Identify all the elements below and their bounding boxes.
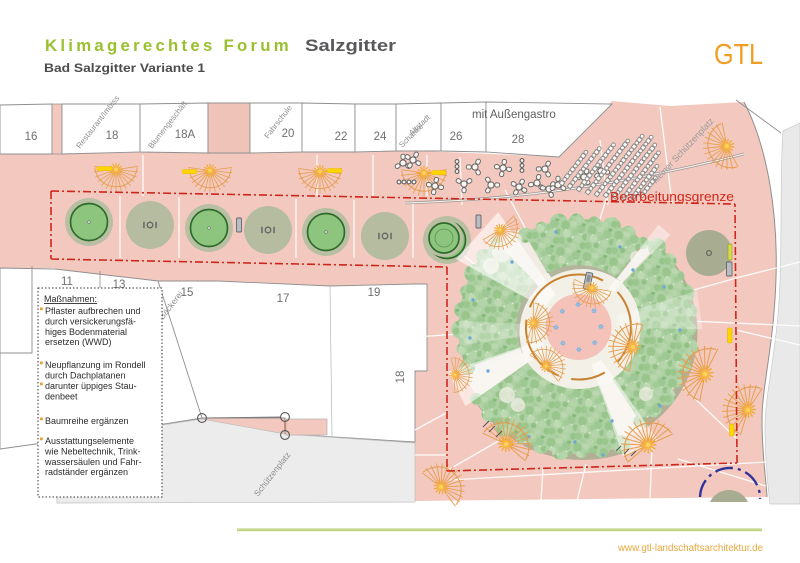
svg-text:28: 28 [512, 134, 525, 146]
svg-text:mit Außengastro: mit Außengastro [472, 109, 556, 121]
svg-text:denbeet: denbeet [45, 391, 78, 401]
svg-text:Pflaster aufbrechen und: Pflaster aufbrechen und [45, 306, 141, 316]
svg-text:www.gtl-landschaftsarchitektur: www.gtl-landschaftsarchitektur.de [617, 543, 763, 554]
svg-text:durch versickerungsfä-: durch versickerungsfä- [45, 316, 136, 326]
svg-text:durch Dachplatanen: durch Dachplatanen [45, 370, 126, 380]
svg-text:17: 17 [277, 293, 290, 305]
svg-text:Neupflanzung im Rondell: Neupflanzung im Rondell [45, 360, 146, 370]
svg-text:Ausstattungselemente: Ausstattungselemente [45, 436, 134, 446]
svg-text:Klimagerechtes Forum: Klimagerechtes Forum [45, 37, 292, 55]
svg-text:higes Bodenmaterial: higes Bodenmaterial [45, 327, 127, 337]
svg-text:20: 20 [282, 128, 295, 140]
svg-text:18A: 18A [175, 129, 196, 141]
svg-text:Bearbeitungsgrenze: Bearbeitungsgrenze [610, 189, 734, 204]
svg-text:Bad Salzgitter Variante 1: Bad Salzgitter Variante 1 [44, 61, 205, 75]
svg-text:wie Nebeltechnik, Trink-: wie Nebeltechnik, Trink- [44, 446, 141, 456]
svg-text:11: 11 [61, 276, 73, 288]
svg-text:19: 19 [368, 287, 381, 299]
svg-text:22: 22 [335, 131, 348, 143]
svg-text:Salzgitter: Salzgitter [305, 37, 397, 55]
svg-text:16: 16 [25, 131, 38, 143]
svg-text:radständer ergänzen: radständer ergänzen [45, 467, 128, 477]
svg-text:Maßnahmen:: Maßnahmen: [44, 294, 97, 304]
svg-text:wassersäulen und Fahr-: wassersäulen und Fahr- [44, 457, 142, 467]
svg-text:ersetzen (WWD): ersetzen (WWD) [45, 337, 112, 347]
svg-text:26: 26 [450, 131, 463, 143]
svg-text:GTL: GTL [714, 39, 763, 71]
svg-text:Baumreihe ergänzen: Baumreihe ergänzen [45, 416, 129, 426]
svg-text:24: 24 [374, 131, 387, 143]
svg-text:darunter üppiges Stau-: darunter üppiges Stau- [45, 381, 137, 391]
svg-text:18: 18 [395, 371, 407, 384]
svg-text:18: 18 [106, 130, 119, 142]
